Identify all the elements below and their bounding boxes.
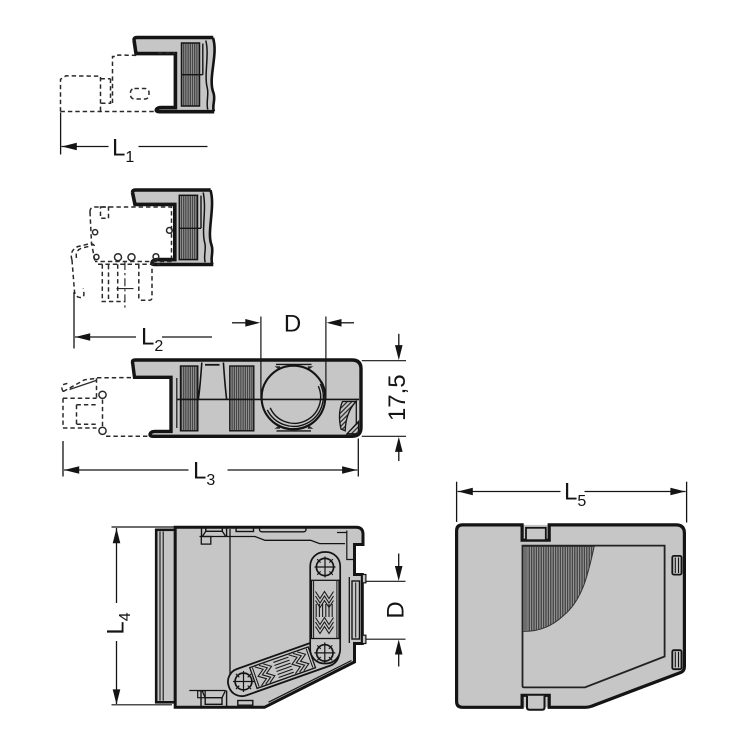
svg-text:L2: L2	[141, 324, 163, 356]
svg-text:L4: L4	[103, 612, 135, 634]
svg-text:L3: L3	[193, 458, 215, 490]
svg-text:D: D	[383, 601, 410, 618]
svg-text:L5: L5	[564, 479, 586, 511]
svg-text:L1: L1	[112, 135, 134, 167]
svg-text:D: D	[284, 311, 301, 338]
svg-text:17,5: 17,5	[384, 374, 411, 421]
